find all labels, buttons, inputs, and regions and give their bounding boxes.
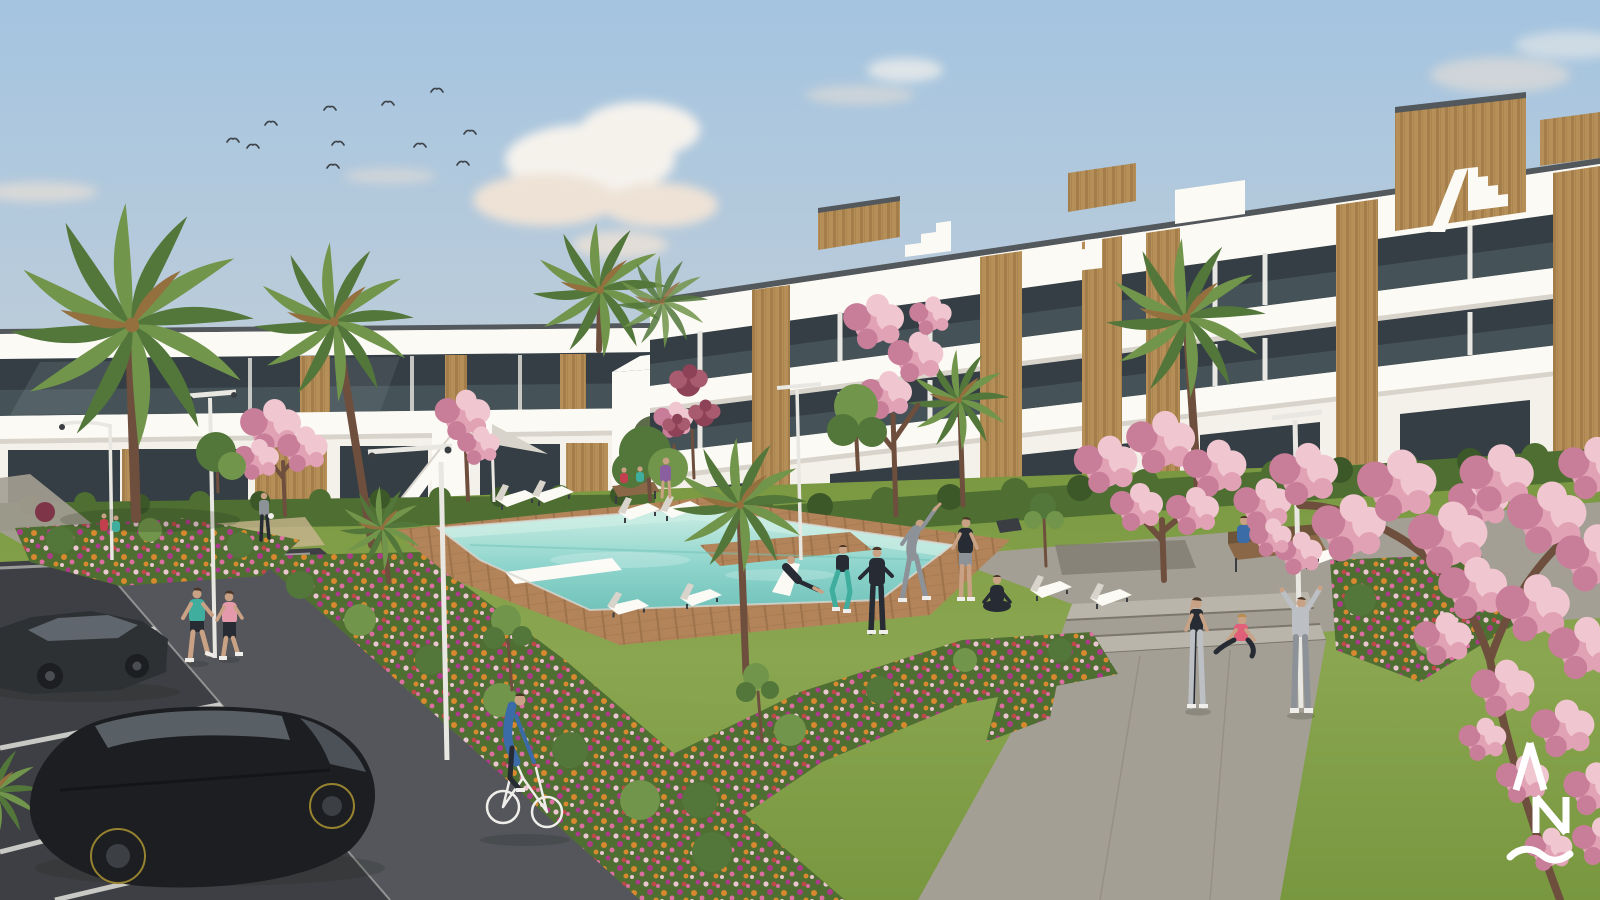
render-scene — [0, 0, 1600, 900]
hatchback-car — [30, 707, 385, 888]
render-image — [0, 0, 1600, 900]
